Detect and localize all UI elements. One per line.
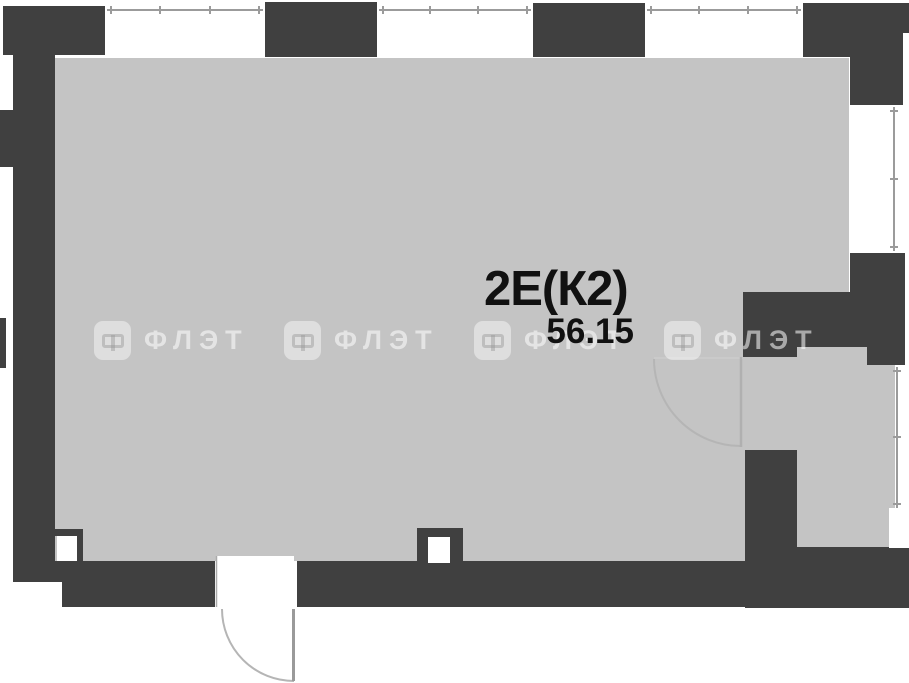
window-sill-notch: [889, 508, 909, 548]
wall-left-edge-stub: [0, 318, 6, 368]
wall-top-right-extension: [850, 55, 903, 105]
window-top-3: [647, 6, 801, 14]
wall-left: [13, 49, 55, 582]
shaft-square-left: [57, 536, 77, 561]
wall-bottom-left-thin: [55, 561, 62, 582]
unit-label: 2Е(К2): [484, 261, 628, 317]
niche-room-floor: [797, 347, 895, 548]
flet-logo-icon: [474, 321, 511, 360]
shaft-square-left-border-right: [77, 529, 83, 561]
watermark-text: ФЛЭТ: [144, 321, 249, 360]
wall-bottom-left: [62, 561, 215, 607]
main-room-floor: [55, 58, 849, 561]
wall-right-mid-block: [850, 253, 905, 347]
entrance-door-swing-fill: [222, 609, 294, 681]
wall-bottom-center: [297, 561, 795, 607]
wall-bottom-right: [795, 547, 909, 608]
flet-logo-icon: [284, 321, 321, 360]
watermark-text: ФЛЭТ: [714, 321, 819, 360]
window-right-upper: [890, 107, 898, 251]
unit-area: 56.15: [534, 312, 634, 352]
window-top-1: [107, 6, 263, 14]
wall-top-segment-3: [533, 3, 645, 57]
entrance-door-swing-arc: [222, 609, 294, 681]
wall-right-lip: [867, 347, 905, 365]
flet-logo-icon: [94, 321, 131, 360]
watermark: ФЛЭТ: [284, 321, 439, 360]
watermark-text: ФЛЭТ: [334, 321, 439, 360]
watermark: ФЛЭТ: [664, 321, 819, 360]
wall-top-left-block: [3, 6, 105, 55]
wall-top-right-block: [803, 3, 903, 57]
wall-left-bump: [0, 110, 13, 167]
flet-logo-icon: [664, 321, 701, 360]
window-top-2: [379, 6, 531, 14]
watermark: ФЛЭТ: [94, 321, 249, 360]
wall-top-right-corner-sliver: [903, 3, 909, 33]
floor-plan-canvas: ФЛЭТ ФЛЭТ ФЛЭТ ФЛЭТ 2Е(К2) 56.15: [0, 0, 909, 683]
shaft-square-mid-border-right: [450, 528, 463, 563]
wall-top-segment-2: [265, 2, 377, 57]
shaft-square-mid-border-left: [417, 528, 428, 563]
entrance-door-gap: [216, 556, 294, 608]
shaft-square-mid: [428, 537, 450, 563]
